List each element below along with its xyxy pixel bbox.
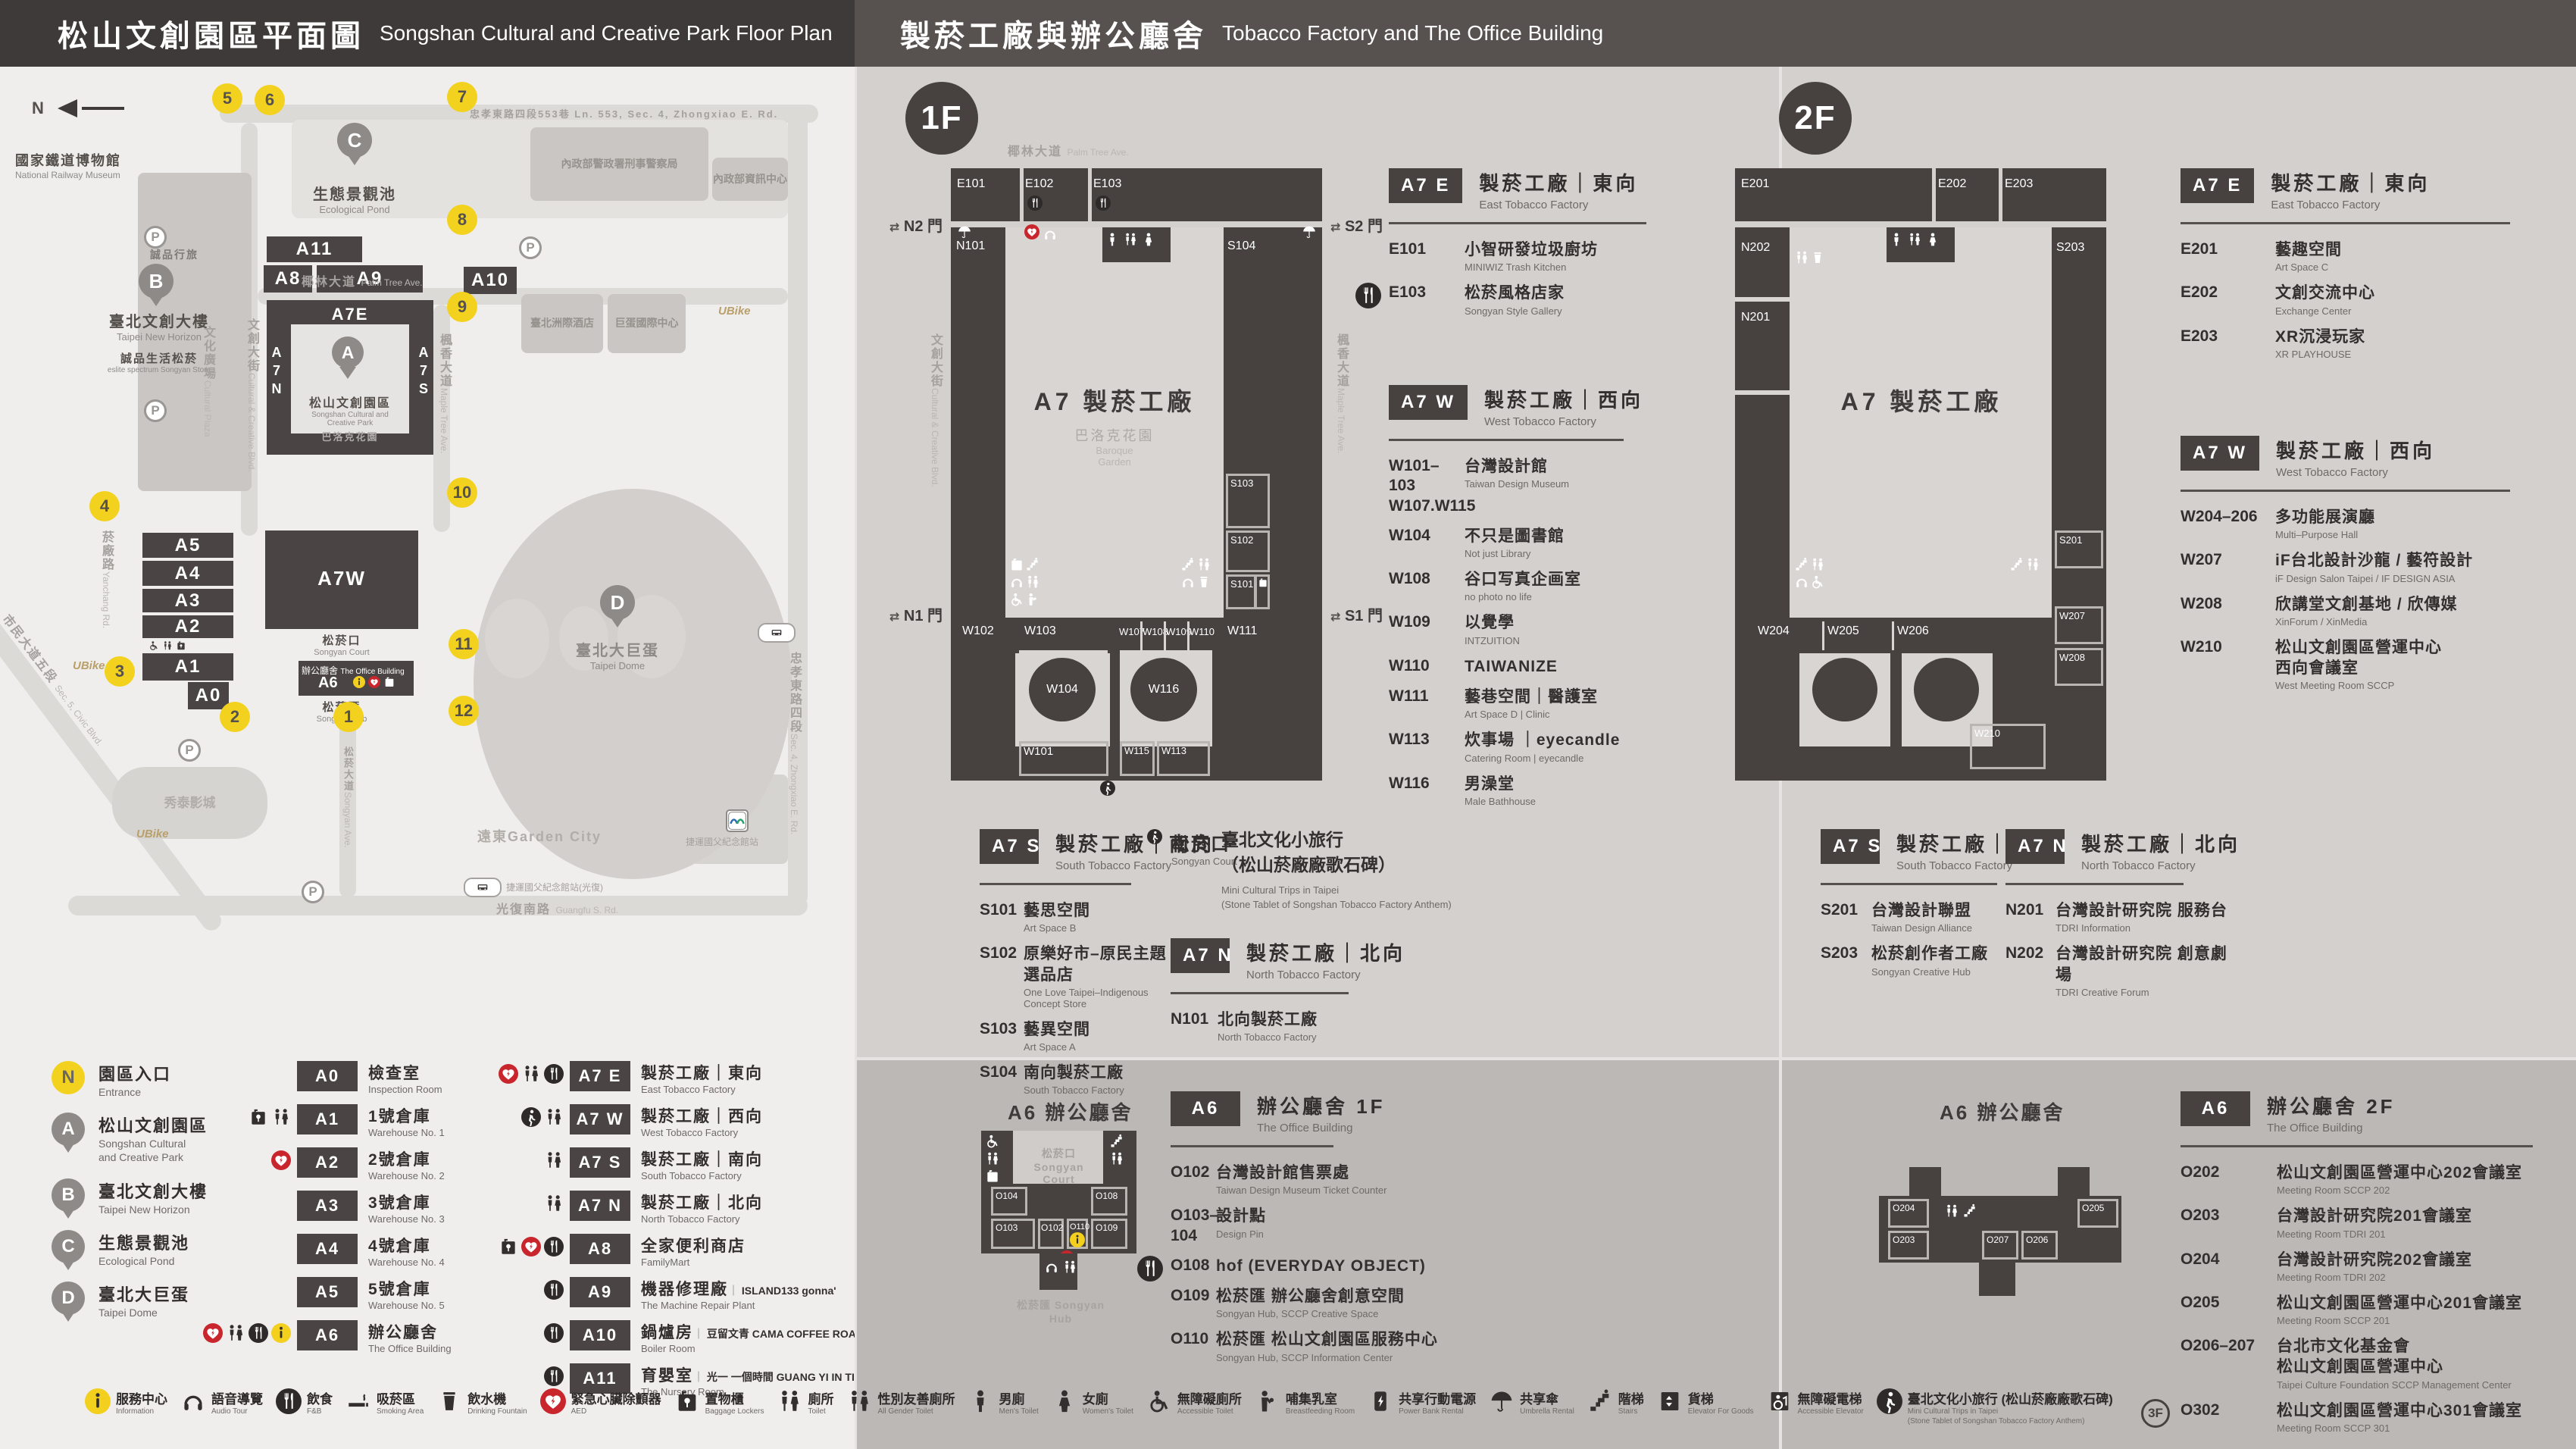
facility-legend-item: 無障礙電梯Accessible Elevator [1767, 1388, 1864, 1418]
room-name-en: One Love Taipei–Indigenous Concept Store [1024, 987, 1177, 1009]
street-guangfu: 光復南路 Guangfu S. Rd. [496, 899, 618, 917]
legend-building-row: A1 1號倉庫Warehouse No. 1 [218, 1104, 452, 1138]
facility-icon [1657, 1388, 1683, 1418]
facility-zh: 男廁 [999, 1388, 1038, 1407]
section-title-en: East Tobacco Factory [1479, 199, 1638, 211]
legend-building-en: Inspection Room [368, 1084, 442, 1095]
street-yanchang: 菸廠路Yanchang Rd. [97, 530, 115, 628]
toilet-icon [1944, 1203, 1959, 1219]
facility-en: Accessible Elevator [1798, 1407, 1864, 1417]
plan2f-corridor [1735, 221, 2106, 227]
a6-1f-room-o104: O104 [991, 1187, 1027, 1216]
legend-place-badge: N [52, 1061, 85, 1094]
panel-divider [855, 67, 857, 1449]
map-entrance-3: 3 [105, 656, 135, 687]
plan1f-room-w111: W111 [1227, 624, 1257, 638]
songyan-court-name: 臺北文化小旅行 （松山菸廠廠歌石碑） Mini Cultural Trips i… [1221, 828, 1615, 912]
room-name-en: Not just Library [1465, 548, 1565, 559]
plan2f-room-e203: E203 [2005, 177, 2033, 191]
umbrella-icon [957, 224, 972, 239]
map-pin-a: A [332, 336, 364, 368]
facility-icon [276, 1388, 302, 1418]
legend-building-zh: 育嬰室 [641, 1367, 693, 1385]
map-baroque-label: 巴洛克花園 [289, 429, 411, 443]
plan1f-street-left: 文創大街Cultural & Creative Blvd. [926, 333, 944, 487]
audio-icon [1794, 574, 1809, 590]
facility-icon [1255, 1388, 1280, 1418]
facility-icon [1368, 1388, 1393, 1418]
legend-building-en: The Office Building [368, 1343, 452, 1354]
room-name-en: INTZUITION [1465, 635, 1520, 646]
section-rule [2181, 490, 2510, 492]
section-title-en: North Tobacco Factory [1246, 969, 1405, 981]
map-entrance-2: 2 [220, 702, 250, 732]
map-park-label: 松山文創園區 Songshan Cultural and Creative Pa… [289, 393, 411, 427]
room-list-row: O109 松菸匯 辦公廳舍創意空間Songyan Hub, SCCP Creat… [1171, 1286, 1595, 1319]
left-header: 松山文創園區平面圖 Songshan Cultural and Creative… [0, 0, 912, 67]
plan2f-oval-left [1812, 658, 1877, 721]
room-list-row: W208 欣講堂文創基地 / 欣傳媒XinForum / XinMedia [2181, 594, 2574, 627]
plan2f-room-w205: W205 [1827, 624, 1859, 638]
legend-row-icons [491, 1064, 570, 1084]
room-code: W208 [2181, 594, 2275, 614]
facility-legend-item: 臺北文化小旅行 (松山菸廠廠歌石碑)Mini Cultural Trips in… [1877, 1388, 2113, 1426]
room-name-zh: 原樂好市–原民主題選品店 [1024, 944, 1177, 985]
section-title-en: East Tobacco Factory [2271, 199, 2430, 211]
locker-icon [249, 1107, 268, 1127]
smoking-icon [345, 1388, 371, 1414]
map-entrance-4: 4 [89, 491, 120, 521]
allgender-icon [846, 1388, 872, 1414]
fnb-icon [544, 1237, 564, 1257]
plan1f-sep [1164, 621, 1166, 650]
audio-icon [1043, 227, 1058, 242]
section-title-zh: 辦公廳舍 2F [2267, 1095, 2396, 1118]
room-list-row: O204 台灣設計研究院202會議室Meeting Room TDRI 202 [2181, 1250, 2574, 1283]
room-name-en: West Meeting Room SCCP [2275, 680, 2442, 691]
room-code: E201 [2181, 239, 2275, 259]
facility-icon [436, 1388, 462, 1418]
room-code: E202 [2181, 283, 2275, 302]
toilet-icon [777, 1388, 802, 1414]
facility-legend-item: 置物櫃Baggage Lockers [674, 1388, 764, 1418]
section-title-en: The Office Building [1257, 1122, 1386, 1134]
room-code: E103 [1389, 283, 1465, 302]
room-name-zh: 欣講堂文創基地 / 欣傳媒 [2275, 594, 2458, 615]
legend-building-row: A4 4號倉庫Warehouse No. 4 [218, 1234, 452, 1268]
aed-icon [1024, 224, 1039, 239]
section-code: A7 N [2005, 829, 2065, 864]
map-block-a3: A3 [142, 589, 233, 612]
legend-building-code: A7 S [570, 1147, 630, 1178]
legend-building-zh: 全家便利商店 [641, 1238, 746, 1255]
room-list-row: S102 原樂好市–原民主題選品店One Love Taipei–Indigen… [980, 944, 1177, 1009]
section-title-zh: 製菸工廠｜東向 [1479, 172, 1638, 195]
a6-1f-stem-icons [1044, 1260, 1077, 1275]
locker-icon [985, 1169, 1000, 1184]
facility-icon [1052, 1388, 1077, 1418]
left-header-title-zh: 松山文創園區平面圖 [58, 11, 364, 55]
legend-place-row: A 松山文創園區Songshan Cultural and Creative P… [52, 1113, 208, 1164]
room-list-row: E101 小智研發垃圾廚坊MINIWIZ Trash Kitchen [1389, 239, 1783, 273]
map-dome-label: 臺北大巨蛋 Taipei Dome [557, 638, 678, 671]
room-list-row: S203 松菸創作者工廠Songyan Creative Hub [1821, 944, 2010, 977]
fnb-icon [249, 1323, 268, 1343]
section-code: A7 S [1821, 829, 1880, 864]
cib-label: 內政部警政署刑事警察局 [561, 158, 678, 171]
room-code: S102 [980, 944, 1024, 963]
room-list-row: S104 南向製菸工廠South Tobacco Factory [980, 1062, 1177, 1096]
legend-place-zh: 園區入口 [98, 1061, 171, 1085]
a6-2f-stem [1979, 1263, 2015, 1296]
fnb-icon [544, 1366, 564, 1386]
plan1f-center-label: A7 製菸工廠 巴洛克花園 Baroque Garden [1034, 383, 1196, 468]
locker-icon [1009, 557, 1024, 572]
legend-building-code: A7 N [570, 1191, 630, 1221]
fnb-icon [544, 1064, 564, 1084]
facility-zh: 服務中心 [116, 1388, 167, 1407]
room-name-zh: 以覺學 [1465, 612, 1520, 633]
audio-icon [1180, 574, 1196, 590]
section-code: A6 [1171, 1091, 1240, 1126]
facility-icon [1489, 1388, 1515, 1418]
toilet-icon [544, 1150, 564, 1170]
street-zhongxiao: 忠孝東路四段Sec. 4, Zhongxiao E. Rd. [785, 652, 803, 834]
room-list-row: E202 文創交流中心Exchange Center [2181, 283, 2567, 316]
audio-icon [180, 1388, 206, 1414]
room-name-zh: 松山文創園區營運中心201會議室 [2277, 1293, 2522, 1313]
legend-building-row: A5 5號倉庫Warehouse No. 5 [218, 1277, 452, 1311]
section-title-zh: 辦公廳舍 1F [1257, 1095, 1386, 1118]
facility-legend-item: 貨梯Elevator For Goods [1657, 1388, 1754, 1418]
legend-place-en: Taipei Dome [98, 1306, 189, 1319]
facility-en: Power Bank Rental [1399, 1407, 1476, 1417]
section-2f-a7s: A7 S 製菸工廠｜南向South Tobacco Factory S201 台… [1821, 829, 2010, 987]
room-name-en: South Tobacco Factory [1024, 1084, 1124, 1096]
floor-badge-1f: 1F [905, 82, 978, 155]
room-code: W108 [1389, 569, 1465, 589]
intercontinental-building: 臺北洲際酒店 [521, 294, 603, 353]
section-code: A7 E [2181, 168, 2254, 203]
legend-building-zh: 機器修理廠 [641, 1281, 728, 1298]
room-name-en: Art Space B [1024, 922, 1090, 934]
section-title-zh: 製菸工廠｜北向 [2081, 833, 2240, 856]
legend-building-code: A2 [297, 1147, 358, 1178]
male-icon [1105, 232, 1120, 247]
ubike-logo-3: UBike [718, 305, 751, 318]
cib-building: 內政部警政署刑事警察局 [530, 127, 708, 201]
room-name-en: Songyan Hub, SCCP Information Center [1216, 1352, 1438, 1363]
room-code: E101 [1389, 239, 1465, 259]
room-list-row: S103 藝異空間Art Space A [980, 1019, 1177, 1053]
map-block-a10: A10 [464, 267, 517, 294]
female-icon [1925, 232, 1940, 247]
parking-icon-5: P [519, 236, 542, 259]
legend-row-icons [491, 1194, 570, 1213]
room-code: O103–104 [1171, 1206, 1216, 1246]
room-code: W113 [1389, 730, 1465, 750]
facility-icon [1767, 1388, 1793, 1418]
room-code: W111 [1389, 687, 1465, 706]
a6-2f-plan-title: A6 辦公廳舍 [1940, 1097, 2065, 1125]
legend-building-en: South Tobacco Factory [641, 1170, 763, 1181]
room-list-row: S201 台灣設計聯盟Taiwan Design Alliance [1821, 900, 2010, 934]
toilet-icon [521, 1064, 541, 1084]
showtime-label: 秀泰影城 [164, 795, 216, 811]
legend-building-en: Warehouse No. 1 [368, 1127, 445, 1138]
room-code: E203 [2181, 327, 2275, 346]
street-cc-blvd: 文創大街Cultural & Creative Blvd. [242, 318, 261, 472]
room-code: W204–206 [2181, 507, 2275, 527]
plan1f-room-s101-box: S101 [1226, 574, 1256, 609]
section-a6-2f: A6 辦公廳舍 2FThe Office Building O202 松山文創園… [2181, 1091, 2574, 1444]
facility-zh: 階梯 [1618, 1388, 1644, 1407]
fnb-icon [544, 1280, 564, 1300]
toilet-icon [985, 1151, 1000, 1166]
legend-place-badge: A [52, 1113, 85, 1146]
legend-buildings-a0-a6: A0 檢查室Inspection Room A1 1號倉庫Warehouse N… [218, 1061, 452, 1363]
plan2f-room-w207-box: W207 [2055, 606, 2103, 644]
ubike-logo-1: UBike [73, 659, 105, 672]
room-name-zh: 南向製菸工廠 [1024, 1062, 1124, 1083]
umbrella-icon [1302, 224, 1317, 239]
legend-places: N 園區入口Entrance A 松山文創園區Songshan Cultural… [52, 1061, 208, 1333]
street-songyan-ave: 松菸大道Songyan Ave. [341, 746, 355, 848]
room-name-zh: 台灣設計研究院 服務台 [2055, 900, 2227, 921]
room-name-en: Art Space D | Clinic [1465, 709, 1598, 720]
legend-place-en: Entrance [98, 1085, 171, 1099]
room-name-zh: 藝趣空間 [2275, 239, 2342, 260]
facility-zh: 共享行動電源 [1399, 1388, 1476, 1407]
room-list-row: O103–104 設計點Design Pin [1171, 1206, 1595, 1246]
plan1f-room-w116-oval: W116 [1130, 658, 1197, 721]
legend-building-en: East Tobacco Factory [641, 1084, 763, 1095]
section-2f-a7n: A7 N 製菸工廠｜北向North Tobacco Factory N201 台… [2005, 829, 2233, 1008]
room-name-en: Multi–Purpose Hall [2275, 529, 2375, 540]
room-code: S101 [980, 900, 1024, 920]
plan2f-room-w208-box: W208 [2055, 648, 2103, 686]
map-entrance-8: 8 [447, 205, 477, 235]
room-code: S203 [1821, 944, 1871, 963]
room-list-row: O203 台灣設計研究院201會議室Meeting Room TDRI 201 [2181, 1206, 2574, 1239]
songyan-court-name-en: Mini Cultural Trips in Taipei (Stone Tab… [1221, 883, 1615, 912]
moi-info-label: 內政部資訊中心 [713, 173, 787, 186]
facility-zh: 臺北文化小旅行 (松山菸廠廠歌石碑) [1908, 1388, 2113, 1407]
toilet-icon [1109, 1151, 1124, 1166]
facility-legend-item: 飲食F&B [276, 1388, 333, 1418]
facility-legend-item: 飲水機Drinking Fountain [436, 1388, 527, 1418]
legend-building-zh: 4號倉庫 [368, 1238, 431, 1255]
plan1f-room-w115-box: W115 [1120, 741, 1155, 776]
street-maple: 楓香大道Maple Tree Ave. [435, 333, 453, 454]
toilet-icon [544, 1107, 564, 1127]
room-name-zh: 松山文創園區營運中心 西向會議室 [2275, 637, 2442, 679]
legend-row-icons [491, 1107, 570, 1127]
facility-icon [674, 1388, 700, 1418]
legend-place-zh: 生態景觀池 [98, 1230, 189, 1254]
facility-en: Breastfeeding Room [1286, 1407, 1355, 1417]
room-name-en: Art Space C [2275, 261, 2342, 273]
plan2f-room-n202: N202 [1741, 241, 1770, 255]
room-code: O205 [2181, 1293, 2277, 1313]
baby-icon [1255, 1388, 1280, 1414]
mrt-logo [726, 809, 749, 832]
room-name-en: Meeting Room SCCP 301 [2277, 1422, 2522, 1434]
room-name-en: Taiwan Design Museum Ticket Counter [1216, 1185, 1386, 1196]
row-icons [1355, 283, 1381, 308]
room-name-zh: 台灣設計聯盟 [1871, 900, 1972, 921]
map-entrance-1: 1 [333, 702, 364, 732]
facility-en: Stairs [1618, 1407, 1644, 1417]
road-bottom [68, 896, 808, 915]
legend-building-code: A6 [297, 1320, 358, 1350]
walkc-icon [1877, 1388, 1902, 1414]
a6-1f-left-arm-icons [985, 1134, 997, 1184]
lift-icon [1657, 1388, 1683, 1414]
facility-en: Information [116, 1407, 167, 1417]
map-a7n-label: A7N [268, 345, 284, 399]
plan1f-room-n101: N101 [956, 239, 985, 253]
legend-buildings-a7-a11: A7 E 製菸工廠｜東向East Tobacco Factory A7 W 製菸… [491, 1061, 892, 1407]
room-list-row: O206–207 台北市文化基金會 松山文創園區營運中心Taipei Cultu… [2181, 1336, 2574, 1391]
legend-row-icons [491, 1280, 570, 1300]
plan2f-sep [1822, 621, 1824, 650]
street-palm: 椰林大道 Palm Tree Ave. [302, 271, 423, 289]
left-header-title-en: Songshan Cultural and Creative Park Floo… [380, 21, 833, 45]
room-code: N101 [1171, 1009, 1218, 1029]
legend-building-row: A8 全家便利商店FamilyMart [491, 1234, 892, 1268]
section-rule [1389, 222, 1646, 224]
plan1f-gate-n2: ⇄ N2 門 [870, 214, 943, 236]
legend-place-badge: B [52, 1178, 85, 1212]
right-header-title-zh: 製菸工廠與辦公廳舍 [900, 11, 1207, 55]
section-title-en: The Office Building [2267, 1122, 2396, 1134]
fnb-icon [1027, 196, 1043, 211]
toilet-icon [1907, 232, 1922, 247]
legend-row-icons [218, 1150, 297, 1170]
section-title-en: West Tobacco Factory [2276, 466, 2435, 479]
room-name-en: Taipei Culture Foundation SCCP Managemen… [2277, 1379, 2512, 1391]
room-name-zh: 藝思空間 [1024, 900, 1090, 921]
legend-building-zh: 2號倉庫 [368, 1151, 431, 1169]
room-name-zh: 台灣設計館 [1465, 456, 1569, 477]
aed-icon [271, 1150, 291, 1170]
section-rule [1389, 439, 1624, 441]
audio-icon [1044, 1260, 1059, 1275]
facility-icon [968, 1388, 993, 1418]
legend-building-en: Warehouse No. 3 [368, 1213, 445, 1225]
map-block-a2: A2 [142, 615, 233, 638]
section-rule [2181, 222, 2510, 224]
map-pond-label: 生態景觀池 Ecological Pond [294, 182, 415, 215]
room-list-row: O110 松菸匯 松山文創園區服務中心Songyan Hub, SCCP Inf… [1171, 1329, 1595, 1363]
map-songyan-court-label: 松菸口 Songyan Court [281, 632, 402, 657]
facility-zh: 緊急心臟除顫器 [571, 1388, 661, 1407]
legend-partner: 光一 一個時間 GUANG YI IN TIME [693, 1371, 871, 1383]
room-code: W116 [1389, 774, 1465, 793]
plan2f-room-s203: S203 [2056, 241, 2084, 255]
map-office-label: 辦公廳舍 The Office Building [302, 664, 405, 677]
room-code: W210 [2181, 637, 2275, 657]
female-icon [1141, 232, 1156, 247]
fnb-icon [1137, 1256, 1163, 1282]
facility-en: Elevator For Goods [1688, 1407, 1754, 1417]
room-name-en: MINIWIZ Trash Kitchen [1465, 261, 1598, 273]
right-header-title-en: Tobacco Factory and The Office Building [1222, 21, 1603, 45]
facility-legend-item: 語音導覽Audio Tour [180, 1388, 263, 1418]
map-entrance-5: 5 [212, 83, 242, 114]
map-garden-city-label: 遠東Garden City [477, 826, 602, 846]
facility-zh: 無障礙廁所 [1177, 1388, 1242, 1407]
room-name-zh: 多功能展演廳 [2275, 507, 2375, 527]
info-icon [1070, 1232, 1085, 1247]
fnb-icon [1355, 283, 1381, 308]
a6-1f-room-o102: O102 [1038, 1219, 1064, 1249]
parking-icon-4: P [302, 881, 324, 903]
plan1f-room-e103: E103 [1093, 177, 1121, 191]
fountain-icon [1810, 250, 1825, 265]
room-name-zh: 松菸創作者工廠 [1871, 944, 1988, 964]
map-a1-icons [148, 640, 186, 651]
room-code: W109 [1389, 612, 1465, 632]
legend-place-zh: 臺北大巨蛋 [98, 1282, 189, 1306]
room-code: S201 [1821, 900, 1871, 920]
legend-building-row: A6 辦公廳舍The Office Building [218, 1320, 452, 1354]
aed-icon [521, 1237, 541, 1257]
room-code: S103 [980, 1019, 1024, 1039]
room-name-zh: 文創交流中心 [2275, 283, 2375, 303]
aed-icon [203, 1323, 223, 1343]
room-list-row: O202 松山文創園區營運中心202會議室Meeting Room SCCP 2… [2181, 1163, 2574, 1196]
room-name-zh: 松山文創園區營運中心301會議室 [2277, 1400, 2522, 1421]
map-a7w-label: A7W [265, 567, 418, 590]
plan2f-sep [1735, 297, 1790, 302]
a6-1f-room-o109: O109 [1091, 1219, 1127, 1249]
facility-en: Baggage Lockers [705, 1407, 764, 1417]
legend-place-row: D 臺北大巨蛋Taipei Dome [52, 1282, 208, 1319]
facility-zh: 無障礙電梯 [1798, 1388, 1864, 1407]
a6-1f-info-icon [1070, 1232, 1085, 1251]
plan1f-street-top: 椰林大道 Palm Tree Ave. [1008, 141, 1129, 159]
legend-building-en: Warehouse No. 4 [368, 1257, 445, 1268]
room-list-row: O108 hof (EVERYDAY OBJECT) [1171, 1256, 1595, 1276]
powerbank-icon [1368, 1388, 1393, 1414]
legend-row-icons [491, 1237, 570, 1257]
map-entrance-11: 11 [449, 629, 479, 659]
map-entrance-10: 10 [447, 477, 477, 508]
plan1f-room-e102: E102 [1025, 177, 1053, 191]
room-name-en: Songyan Style Gallery [1465, 305, 1565, 317]
plan1f-room-s103-box: S103 [1226, 474, 1270, 528]
plan1f-n2-icons [957, 224, 972, 239]
songyan-court-icon [1147, 829, 1162, 867]
room-name-zh: hof (EVERYDAY OBJECT) [1216, 1256, 1426, 1276]
legend-place-badge: C [52, 1230, 85, 1263]
a6-1f-plan-title: A6 辦公廳舍 [1008, 1097, 1133, 1125]
stairs-icon [1025, 557, 1040, 572]
floor-badge-2f: 2F [1779, 82, 1852, 155]
facility-en: Women's Toilet [1083, 1407, 1133, 1417]
fnb-icon [544, 1323, 564, 1343]
info-icon [85, 1388, 111, 1414]
legend-place-row: N 園區入口Entrance [52, 1061, 208, 1099]
plan1f-left-wing-icons [1009, 557, 1039, 607]
room-name-en: Songyan Creative Hub [1871, 966, 1988, 978]
room-name-en: Meeting Room TDRI 202 [2277, 1272, 2472, 1283]
facility-en: F&B [307, 1407, 333, 1417]
legend-building-code: A10 [570, 1320, 630, 1350]
room-name-en: Catering Room | eyecandle [1465, 753, 1620, 764]
